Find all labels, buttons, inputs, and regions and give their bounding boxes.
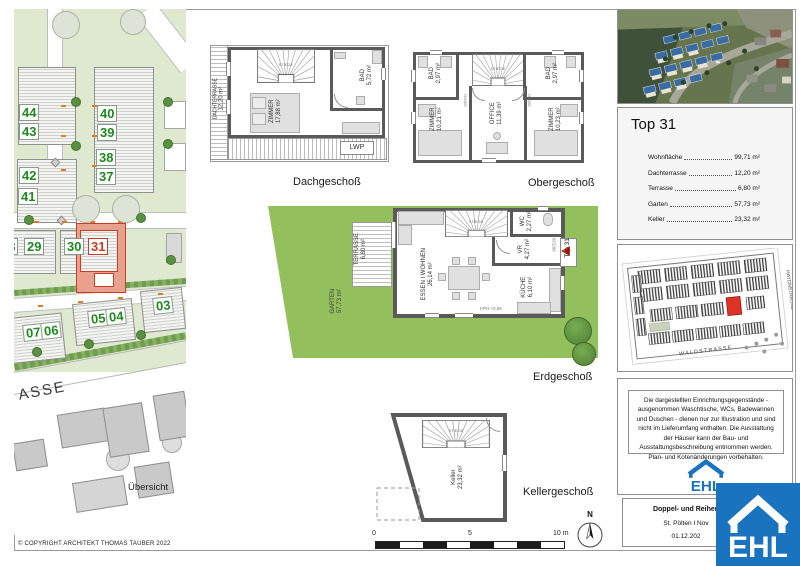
room-label-bad: BAD 5,72 m² — [360, 35, 374, 115]
lot-number: 44 — [19, 104, 39, 121]
area-label: Dachterrasse — [648, 170, 687, 177]
room-name: ZIMMER — [430, 79, 437, 159]
north-arrow-icon: N — [575, 508, 605, 552]
toilet — [543, 213, 553, 226]
room-label-zimmer: ZIMMER 17,88 m² — [269, 71, 283, 151]
area-value: 99,71 m² — [734, 154, 760, 161]
room-label-dachterrasse: DACHTERRASSE 12,20 m² — [212, 59, 225, 139]
terrace-door — [391, 222, 396, 248]
room-name: VR — [518, 209, 525, 289]
area-value: 23,32 m² — [734, 216, 760, 223]
window — [579, 70, 584, 82]
room-label-office: OFFICE 11,39 m² — [490, 73, 504, 153]
room-name: TERRASSE — [354, 209, 361, 289]
sink — [566, 56, 576, 68]
window — [226, 100, 231, 114]
unit-tag-label: Top 31 — [564, 228, 572, 268]
plan-sheet: { "sheet": { "copyright": "© COPYRIGHT A… — [0, 0, 800, 566]
chair — [438, 273, 446, 281]
overview-title: Übersicht — [128, 482, 168, 493]
area-value: 57,73 m² — [734, 201, 760, 208]
stairs-label: STIEGE — [446, 428, 466, 433]
lot-number: 37 — [96, 168, 116, 185]
dining-table — [448, 266, 480, 290]
stairs-label: STIEGE — [466, 219, 486, 224]
room-area: 11,39 m² — [497, 73, 504, 153]
lot-number: 41 — [18, 188, 38, 205]
entry-dimension: 90/220 — [551, 230, 556, 260]
area-label: Terrasse — [648, 185, 673, 192]
window — [226, 62, 231, 76]
highlighted-unit — [726, 296, 742, 315]
area-row: Keller23,32 m² — [648, 216, 760, 223]
room-label-keller: Keller 23,32 m² — [451, 437, 465, 517]
building — [14, 439, 48, 472]
room-label-garten: GARTEN 57,73 m² — [330, 261, 344, 341]
chair — [468, 292, 476, 300]
area-row: Dachterrasse12,20 m² — [648, 170, 760, 177]
window — [411, 70, 416, 82]
chair — [452, 257, 460, 265]
partition — [330, 108, 384, 111]
scale-bar — [375, 541, 565, 549]
disclaimer-panel: Die dargestellten Einrichtungsgegenständ… — [617, 378, 793, 495]
window — [482, 158, 496, 163]
partition — [456, 54, 459, 100]
room-label-zimmer-right: ZIMMER 10,23 m² — [549, 79, 563, 159]
room-name: ESSEN I WOHNEN — [421, 234, 428, 314]
lwp-box: LWP — [340, 141, 374, 155]
area-label: Garten — [648, 201, 668, 208]
partition — [469, 86, 472, 160]
area-row: Garten57,73 m² — [648, 201, 760, 208]
logo-text: EHL — [728, 531, 788, 564]
sink — [334, 52, 346, 59]
floor-title-kellergeschoss: Kellergeschoß — [523, 486, 593, 498]
disclaimer-text: Die dargestellten Einrichtungsgegenständ… — [628, 390, 784, 454]
scale-zero: 0 — [372, 530, 376, 537]
sink — [418, 56, 428, 68]
scale-ten: 10 m — [553, 530, 569, 537]
room-area: 57,73 m² — [337, 261, 344, 341]
ehl-logo: EHL — [716, 483, 800, 566]
door-dimension: 80/200 — [528, 85, 533, 115]
room-area: 4,27 m² — [525, 209, 532, 289]
room-area: 26,14 m² — [428, 234, 435, 314]
room-area: 10,23 m² — [556, 79, 563, 159]
north-label: N — [587, 510, 593, 519]
room-label-zimmer-left: ZIMMER 10,21 m² — [430, 79, 444, 159]
sideboard — [342, 122, 380, 134]
partition — [492, 237, 495, 265]
chair — [452, 292, 460, 300]
location-mini-map: WALDSTRASSE HAYDNSTRASSE — [617, 244, 793, 372]
room-label-vr: VR 4,27 m² — [518, 209, 532, 289]
unit-title: Top 31 — [631, 116, 676, 133]
area-label: Wohnfläche — [648, 154, 682, 161]
area-value: 12,20 m² — [734, 170, 760, 177]
lot-number: 28 — [14, 238, 18, 255]
lot-number: 39 — [97, 124, 117, 141]
stairs-label: STIEGE — [488, 66, 508, 71]
door-dimension: 80/200 — [464, 85, 469, 115]
tree — [564, 317, 592, 345]
sofa — [398, 225, 412, 245]
pillow — [252, 113, 266, 125]
area-row: Wohnfläche99,71 m² — [648, 154, 760, 161]
lot-number-highlighted: 31 — [88, 238, 108, 255]
room-name: BAD — [360, 35, 367, 115]
floor-title-erdgeschoss: Erdgeschoß — [533, 371, 592, 383]
lot-number: 03 — [152, 296, 174, 315]
window — [411, 112, 416, 124]
room-area: 10,21 m² — [437, 79, 444, 159]
lot-number: 42 — [19, 167, 39, 184]
room-area: 23,32 m² — [458, 437, 465, 517]
window — [560, 276, 565, 290]
floor-title-dachgeschoss: Dachgeschoß — [293, 176, 361, 188]
chair — [482, 273, 490, 281]
room-name: Keller — [451, 437, 458, 517]
window — [538, 206, 548, 211]
lot-number: 43 — [19, 123, 39, 140]
window — [502, 455, 507, 471]
entry-door — [455, 313, 473, 318]
area-row: Terrasse6,80 m² — [648, 185, 760, 192]
room-label-terrasse: TERRASSE 6,80 m² — [354, 209, 368, 289]
room-area: 5,72 m² — [367, 35, 374, 115]
lot-number: 06 — [40, 321, 62, 340]
window — [381, 68, 386, 80]
house-annex — [94, 273, 114, 287]
building — [134, 461, 175, 498]
sofa — [398, 211, 444, 225]
lot-number: 04 — [105, 307, 127, 326]
site-overview-map: 44 43 40 39 38 37 42 41 28 29 30 31 05 0… — [14, 9, 186, 535]
room-name: ZIMMER — [549, 79, 556, 159]
aerial-photo — [617, 9, 793, 104]
room-area: 17,88 m² — [276, 71, 283, 151]
scale-five: 5 — [468, 530, 472, 537]
chair — [468, 257, 476, 265]
room-area: 12,20 m² — [218, 59, 225, 139]
area-value: 6,80 m² — [738, 185, 760, 192]
stairs-label: STIEGE — [276, 62, 296, 67]
lot-number: 29 — [24, 238, 44, 255]
unit-info-panel: Top 31 Wohnfläche99,71 m² Dachterrasse12… — [617, 107, 793, 240]
floor-level: FPH +0,88 — [476, 306, 506, 311]
room-area: 6,80 m² — [361, 209, 368, 289]
room-name: ZIMMER — [269, 71, 276, 151]
street-label-haydnstrasse: HAYDNSTRASSE — [784, 270, 792, 311]
room-name: GARTEN — [330, 261, 337, 341]
partition — [330, 49, 333, 110]
room-name: OFFICE — [490, 73, 497, 153]
copyright-text: © COPYRIGHT ARCHITEKT THOMAS TAUBER 2022 — [18, 541, 171, 547]
room-label-essen-wohnen: ESSEN I WOHNEN 26,14 m² — [421, 234, 435, 314]
lot-number: 40 — [97, 105, 117, 122]
area-label: Keller — [648, 216, 665, 223]
building — [102, 402, 149, 458]
tree — [572, 342, 596, 366]
floor-title-obergeschoss: Obergeschoß — [528, 177, 595, 189]
window — [579, 112, 584, 124]
lot-number: 30 — [64, 238, 84, 255]
pillow — [252, 97, 266, 109]
lot-number: 38 — [96, 149, 116, 166]
